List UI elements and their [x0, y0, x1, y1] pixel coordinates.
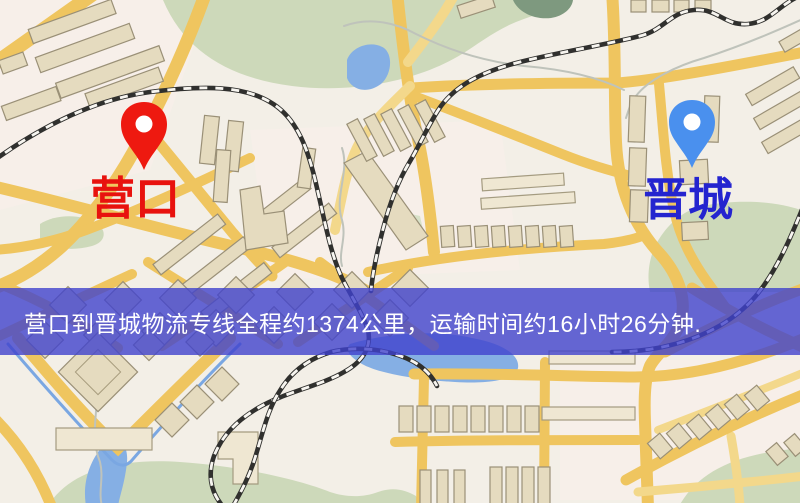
red-map-pin-icon[interactable]	[119, 100, 169, 172]
destination-city-label: 晋城	[643, 177, 733, 222]
pin-shape	[121, 102, 167, 170]
origin-city-label: 营口	[90, 176, 180, 221]
map-background	[0, 0, 800, 503]
pin-hole	[136, 116, 153, 133]
route-map-image: 营口 晋城 营口到晋城物流专线全程约1374公里，运输时间约16小时26分钟.	[0, 0, 800, 503]
pin-shape	[669, 100, 715, 168]
route-info-text: 营口到晋城物流专线全程约1374公里，运输时间约16小时26分钟.	[24, 305, 701, 339]
pin-hole	[684, 114, 701, 131]
blue-map-pin-icon[interactable]	[667, 98, 717, 170]
route-info-banner: 营口到晋城物流专线全程约1374公里，运输时间约16小时26分钟.	[0, 288, 800, 355]
